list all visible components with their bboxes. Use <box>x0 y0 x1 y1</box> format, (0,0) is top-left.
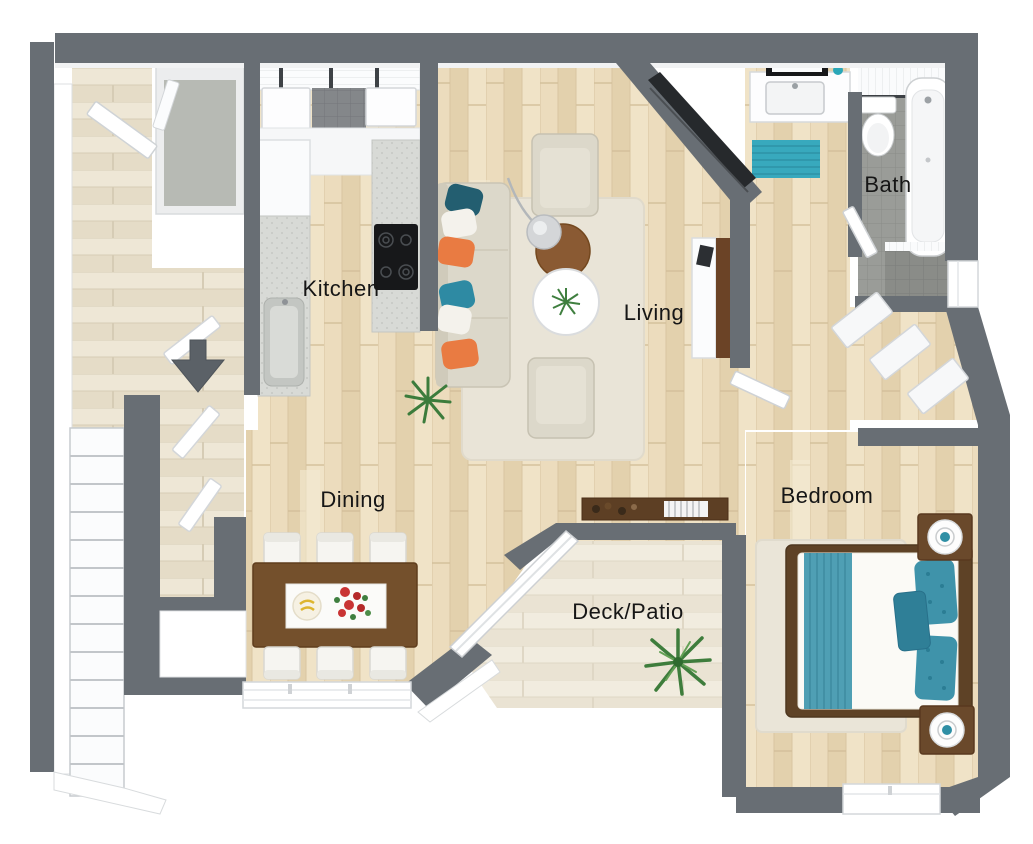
shower-wall <box>885 242 948 251</box>
room-label-bath: Bath <box>864 172 911 197</box>
deck-top-wall <box>556 523 736 540</box>
books <box>664 501 708 517</box>
fruit-plate <box>293 592 321 620</box>
toilet-seat <box>867 123 889 153</box>
bedroom-top-wall <box>858 428 980 446</box>
tub-drain <box>926 158 931 163</box>
toilet-tank <box>860 97 896 113</box>
floorplan-svg: Kitchen Living Bath Bedroom Dining Deck/… <box>0 0 1033 844</box>
bedroom-bottom-wall-right <box>938 787 980 813</box>
tall-cabinet <box>258 140 310 218</box>
armchair-bottom <box>528 358 594 438</box>
dining-chairs-top <box>264 533 406 565</box>
living-hall-wall <box>730 200 750 368</box>
bath-window <box>948 261 978 307</box>
stair-wall <box>124 395 160 695</box>
tub-faucet <box>925 97 932 104</box>
tv-console <box>692 238 730 358</box>
top-wall-face <box>55 63 958 68</box>
bottom-left-wall <box>124 677 246 695</box>
right-wall-upper <box>945 33 978 261</box>
kitchen-right-wall <box>420 63 438 331</box>
bedroom-left-wall <box>722 535 746 797</box>
kitchen-faucet <box>282 299 288 305</box>
bedroom <box>756 514 974 754</box>
room-label-kitchen: Kitchen <box>303 276 380 301</box>
room-label-living: Living <box>624 300 684 325</box>
bedroom-bottom-wall-left <box>736 787 845 813</box>
cooktop <box>374 224 418 290</box>
nightstand-bottom <box>920 706 974 754</box>
bath-mat <box>752 140 820 178</box>
shower-floor-shade <box>885 250 948 296</box>
dryer <box>366 88 416 126</box>
bedroom-right-wall <box>978 415 1010 777</box>
floorplan-image: Kitchen Living Bath Bedroom Dining Deck/… <box>0 0 1033 844</box>
room-label-bedroom: Bedroom <box>781 483 874 508</box>
bathtub-basin <box>912 90 944 242</box>
bedroom-window <box>843 784 940 814</box>
dining-room <box>253 533 417 679</box>
vanity-faucet <box>792 83 798 89</box>
kitchen-left-wall <box>244 63 260 395</box>
closet-divider-wall <box>160 597 246 611</box>
left-wall <box>30 42 54 772</box>
kitchen-sink-basin <box>270 306 298 378</box>
nightstand-top <box>918 514 972 560</box>
room-label-deck-patio: Deck/Patio <box>572 599 683 624</box>
room-label-dining: Dining <box>320 487 385 512</box>
floor-lamp-highlight <box>533 221 547 235</box>
bed-runner <box>804 553 852 709</box>
accent-pillow <box>893 590 931 651</box>
under-stair-closet <box>160 611 246 677</box>
top-wall <box>55 33 958 63</box>
armchair-top <box>532 134 598 216</box>
dining-chairs-bottom <box>264 647 406 679</box>
dining-window <box>243 682 411 708</box>
sideboard <box>582 498 728 520</box>
washer <box>262 88 310 130</box>
